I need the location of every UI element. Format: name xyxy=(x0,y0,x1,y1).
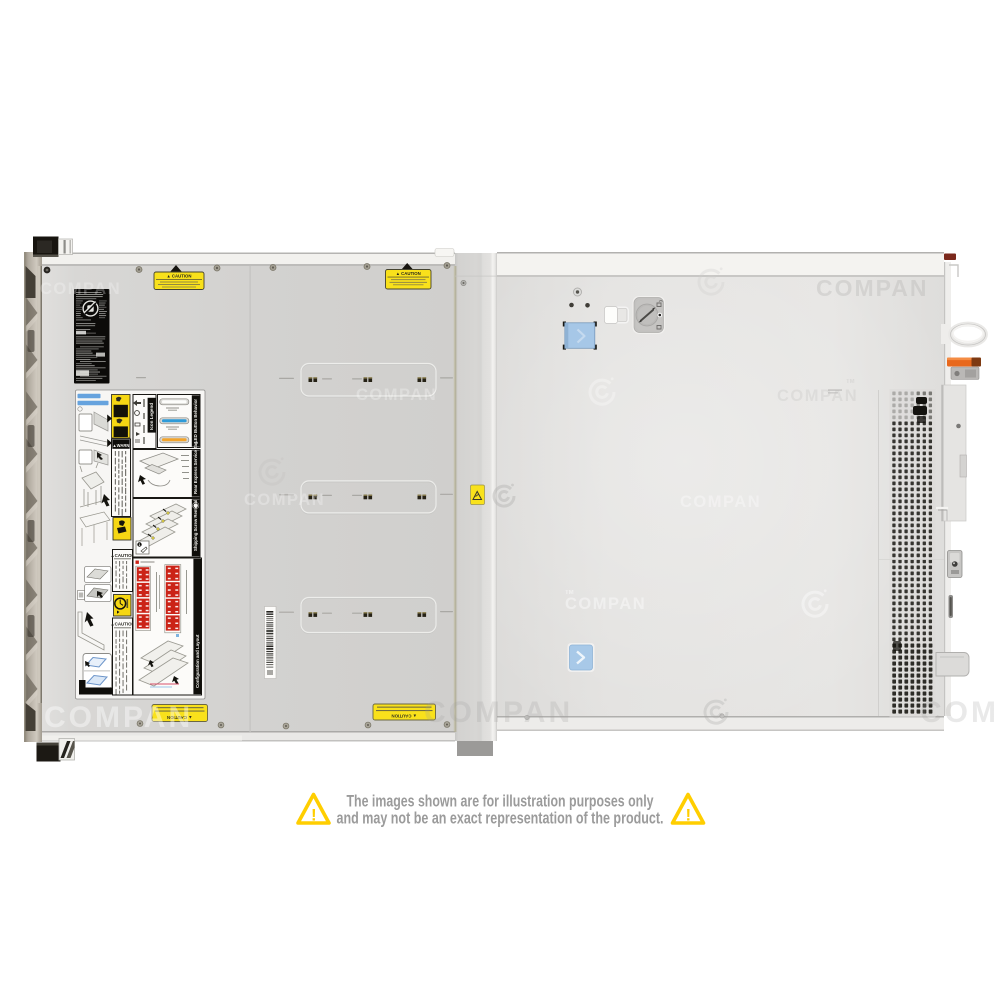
svg-text:!: ! xyxy=(311,806,317,825)
svg-text:Rear Express Service Tag: Rear Express Service Tag xyxy=(193,441,198,494)
svg-text:COMPAN: COMPAN xyxy=(565,595,646,613)
svg-text:▲ CAUTION: ▲ CAUTION xyxy=(396,271,421,276)
svg-text:!: ! xyxy=(685,806,691,825)
svg-text:COMPAN: COMPAN xyxy=(680,493,761,511)
svg-text:COMPAN: COMPAN xyxy=(40,280,121,298)
svg-text:LED Button Behavior: LED Button Behavior xyxy=(193,399,198,443)
svg-text:COMPAN: COMPAN xyxy=(424,696,573,729)
svg-text:TM: TM xyxy=(846,379,855,385)
svg-text:▲WARN: ▲WARN xyxy=(113,443,130,448)
svg-text:COMPAN: COMPAN xyxy=(920,696,1000,729)
svg-text:TM: TM xyxy=(565,590,574,596)
svg-text:COMPAN: COMPAN xyxy=(244,491,325,509)
svg-text:▲ CAUTION: ▲ CAUTION xyxy=(166,274,191,279)
svg-text:COMPAN: COMPAN xyxy=(44,701,193,734)
svg-text:Shipping Screw Removal: Shipping Screw Removal xyxy=(193,500,198,551)
svg-text:1: 1 xyxy=(139,543,141,547)
svg-text:▲CAUTION: ▲CAUTION xyxy=(110,622,134,627)
svg-text:Configuration and Layout: Configuration and Layout xyxy=(195,634,200,688)
svg-text:▲ CAUTION: ▲ CAUTION xyxy=(391,714,417,719)
svg-text:▲CAUTION: ▲CAUTION xyxy=(110,553,134,558)
svg-text:COMPAN: COMPAN xyxy=(816,275,929,301)
svg-text:COMPAN: COMPAN xyxy=(356,386,437,404)
svg-text:COMPAN: COMPAN xyxy=(777,387,858,405)
svg-text:Icon Legend: Icon Legend xyxy=(149,403,154,430)
svg-text:and may not be an exact repres: and may not be an exact representation o… xyxy=(337,809,664,828)
